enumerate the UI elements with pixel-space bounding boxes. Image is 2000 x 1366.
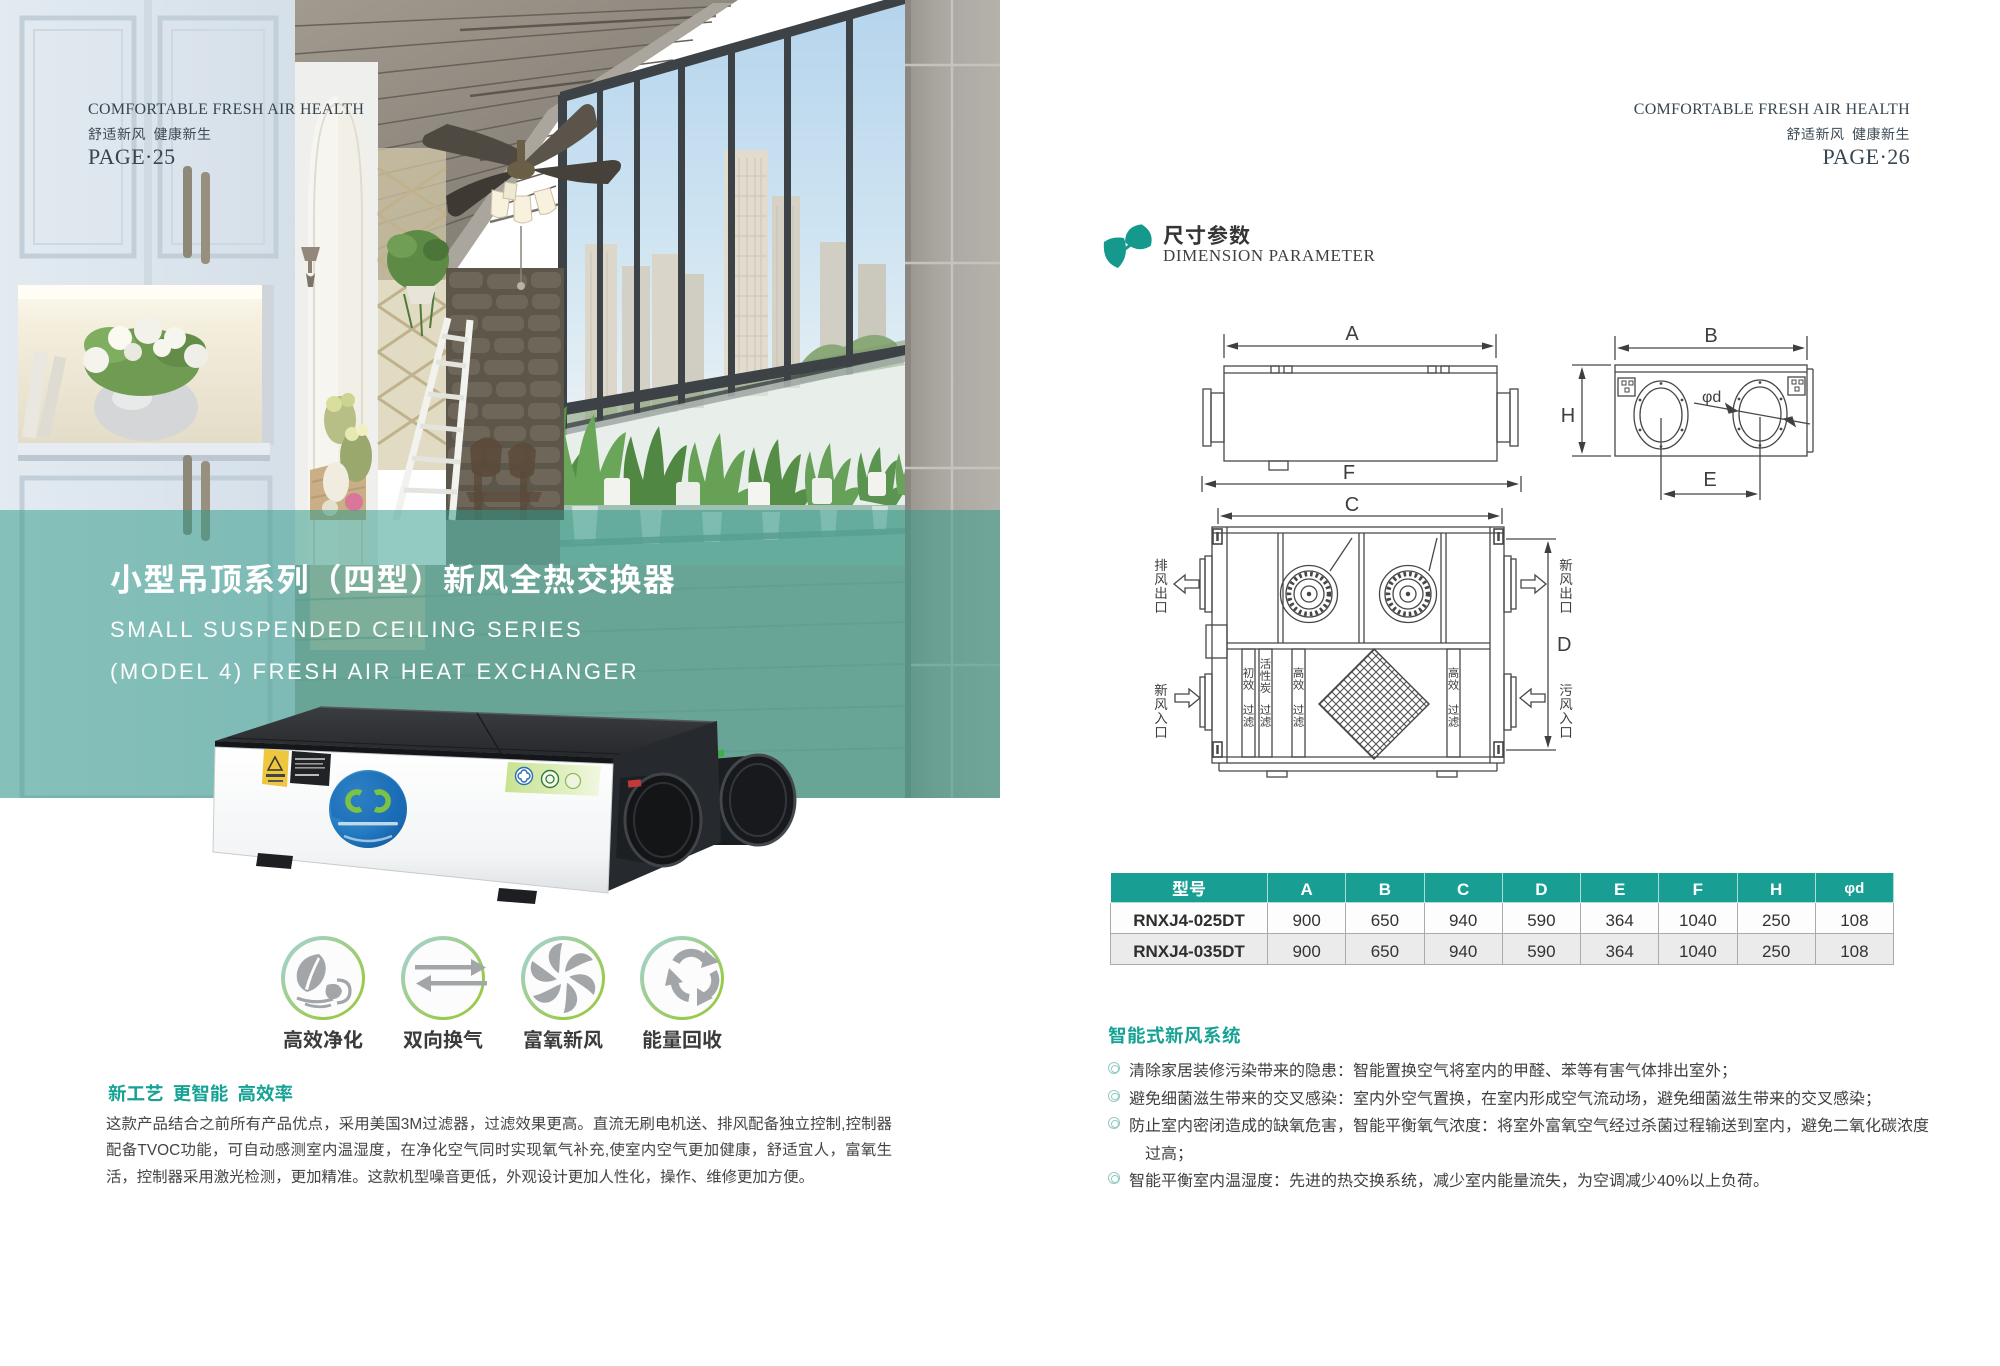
svg-text:滤: 滤 bbox=[1260, 714, 1272, 730]
svg-text:A: A bbox=[1345, 323, 1359, 345]
svg-text:C: C bbox=[1345, 494, 1359, 516]
svg-text:效: 效 bbox=[1243, 677, 1255, 693]
svg-text:滤: 滤 bbox=[1448, 714, 1460, 730]
svg-text:效: 效 bbox=[1293, 677, 1305, 693]
svg-text:B: B bbox=[1704, 325, 1717, 347]
svg-text:D: D bbox=[1557, 634, 1571, 656]
svg-text:滤: 滤 bbox=[1293, 714, 1305, 730]
svg-text:口: 口 bbox=[1559, 721, 1573, 741]
svg-text:效: 效 bbox=[1448, 677, 1460, 693]
svg-text:F: F bbox=[1343, 462, 1355, 484]
svg-text:E: E bbox=[1703, 469, 1716, 491]
svg-text:滤: 滤 bbox=[1243, 714, 1255, 730]
svg-text:炭: 炭 bbox=[1260, 680, 1272, 696]
svg-text:φd: φd bbox=[1702, 389, 1721, 406]
svg-text:H: H bbox=[1561, 405, 1575, 427]
svg-text:口: 口 bbox=[1154, 596, 1168, 616]
svg-text:口: 口 bbox=[1154, 721, 1168, 741]
svg-text:口: 口 bbox=[1559, 596, 1573, 616]
